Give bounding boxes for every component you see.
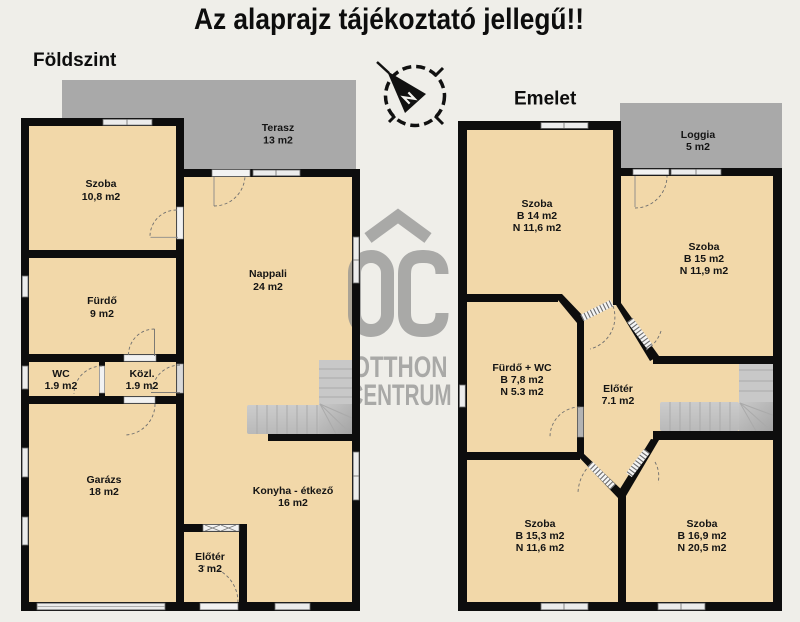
svg-text:1.9 m2: 1.9 m2 xyxy=(45,380,78,392)
svg-text:CENTRUM: CENTRUM xyxy=(349,379,452,412)
svg-text:18 m2: 18 m2 xyxy=(89,486,119,498)
svg-text:Szoba: Szoba xyxy=(689,241,720,253)
svg-text:Terasz: Terasz xyxy=(262,122,295,134)
svg-text:B 15,3 m2: B 15,3 m2 xyxy=(515,530,564,542)
svg-text:Földszint: Földszint xyxy=(33,50,117,71)
svg-text:Fürdő + WC: Fürdő + WC xyxy=(492,362,552,374)
svg-text:N 20,5 m2: N 20,5 m2 xyxy=(677,542,726,554)
svg-text:Előtér: Előtér xyxy=(195,551,225,563)
svg-text:Emelet: Emelet xyxy=(514,89,577,110)
svg-text:Szoba: Szoba xyxy=(687,518,718,530)
svg-text:3 m2: 3 m2 xyxy=(198,563,222,575)
svg-text:B 7,8 m2: B 7,8 m2 xyxy=(500,374,543,386)
svg-text:Az alaprajz tájékoztató jelleg: Az alaprajz tájékoztató jellegű!! xyxy=(194,3,584,36)
svg-text:1.9 m2: 1.9 m2 xyxy=(126,380,159,392)
svg-text:Fürdő: Fürdő xyxy=(87,295,117,307)
svg-text:B 14 m2: B 14 m2 xyxy=(517,210,557,222)
svg-text:N 11,6 m2: N 11,6 m2 xyxy=(516,542,565,554)
svg-text:13 m2: 13 m2 xyxy=(263,135,293,147)
svg-text:24 m2: 24 m2 xyxy=(253,281,283,293)
svg-text:B 15 m2: B 15 m2 xyxy=(684,253,724,265)
svg-text:Előtér: Előtér xyxy=(603,383,633,395)
svg-text:7.1 m2: 7.1 m2 xyxy=(602,395,635,407)
svg-text:N 11,9 m2: N 11,9 m2 xyxy=(680,265,729,277)
svg-text:5 m2: 5 m2 xyxy=(686,141,710,153)
svg-text:Nappali: Nappali xyxy=(249,268,287,280)
svg-text:16 m2: 16 m2 xyxy=(278,497,308,509)
svg-text:9 m2: 9 m2 xyxy=(90,308,114,320)
svg-text:WC: WC xyxy=(52,368,70,380)
svg-text:Szoba: Szoba xyxy=(522,198,553,210)
svg-text:N 11,6 m2: N 11,6 m2 xyxy=(513,222,562,234)
svg-text:Konyha - étkező: Konyha - étkező xyxy=(253,485,334,497)
svg-text:10,8 m2: 10,8 m2 xyxy=(82,191,121,203)
svg-text:Szoba: Szoba xyxy=(86,178,117,190)
svg-text:B 16,9 m2: B 16,9 m2 xyxy=(677,530,726,542)
svg-text:Közl.: Közl. xyxy=(129,368,154,380)
svg-text:Garázs: Garázs xyxy=(86,474,121,486)
svg-text:N 5.3 m2: N 5.3 m2 xyxy=(500,386,543,398)
svg-text:Szoba: Szoba xyxy=(525,518,556,530)
svg-text:Loggia: Loggia xyxy=(681,129,716,141)
